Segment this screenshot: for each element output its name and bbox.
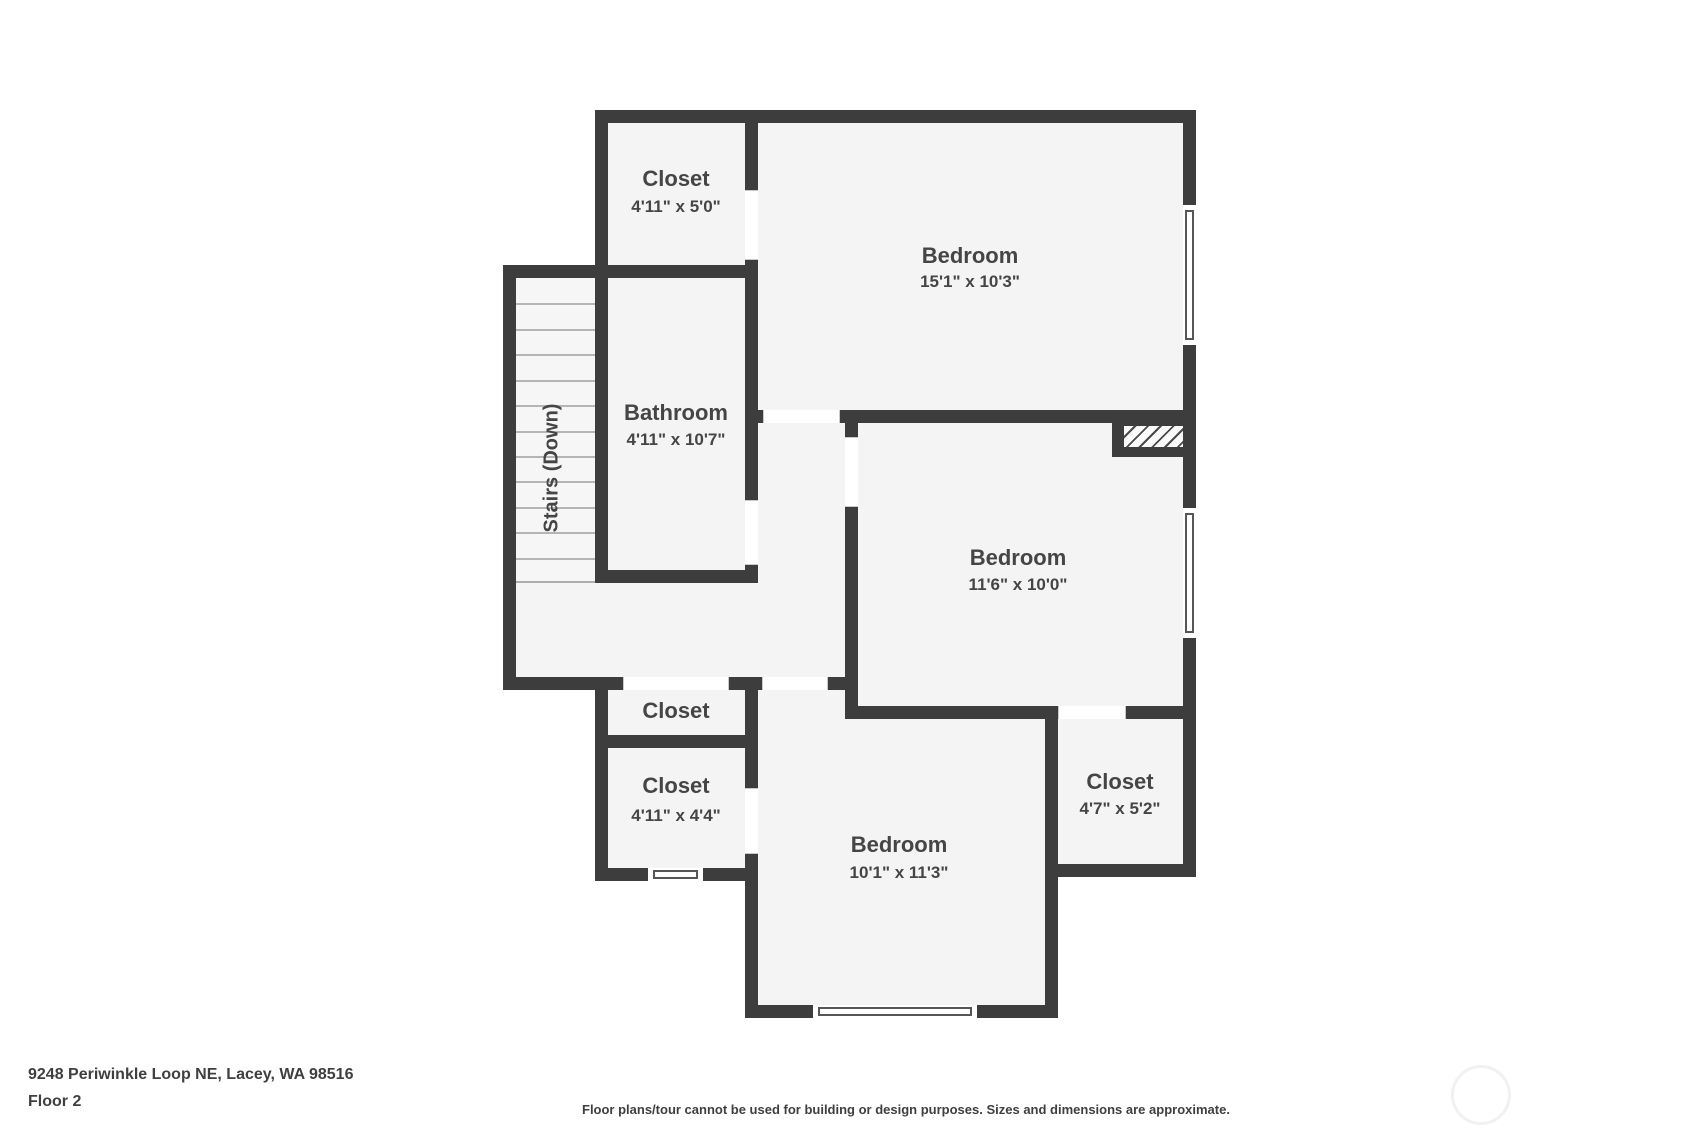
wall [595, 677, 608, 881]
window-bedroom-top [1183, 205, 1196, 345]
room-name-closet-top-left: Closet [642, 166, 709, 192]
watermark-logo-circle [1451, 1065, 1511, 1125]
stair-edge-line [516, 581, 595, 583]
room-name-bedroom-bottom: Bedroom [851, 832, 948, 858]
room-dims-closet-top-left: 4'11" x 5'0" [631, 197, 720, 217]
room-floor [758, 423, 858, 683]
wall [595, 735, 758, 748]
wall [595, 570, 758, 583]
room-dims-bedroom-top: 15'1" x 10'3" [920, 272, 1020, 292]
room-name-bathroom: Bathroom [624, 400, 728, 426]
window-pane [653, 870, 698, 879]
stair-tread [516, 354, 595, 356]
room-name-bedroom-top: Bedroom [922, 243, 1019, 269]
door-opening-closet-hallway [623, 677, 729, 690]
door-opening-closet-lower-left [745, 788, 758, 854]
door-opening-bedroom-middle [845, 437, 858, 507]
window-pane [818, 1007, 972, 1016]
door-opening-bathroom [745, 500, 758, 565]
stairs-label: Stairs (Down) [541, 404, 564, 533]
window-pane [1185, 513, 1194, 633]
window-bedroom-bottom [813, 1005, 977, 1018]
floor-number-label: Floor 2 [28, 1093, 81, 1111]
wall [845, 706, 1196, 719]
wall [503, 265, 758, 278]
room-name-closet-bottom-right: Closet [1086, 769, 1153, 795]
door-opening-closet-bottom-right [1058, 706, 1126, 719]
room-dims-closet-lower-left: 4'11" x 4'4" [631, 806, 720, 826]
wall [595, 110, 608, 570]
room-dims-closet-bottom-right: 4'7" x 5'2" [1080, 799, 1161, 819]
stair-tread [516, 558, 595, 560]
property-address: 9248 Periwinkle Loop NE, Lacey, WA 98516 [28, 1066, 353, 1084]
room-name-closet-lower-left: Closet [642, 773, 709, 799]
stair-tread [516, 380, 595, 382]
window-pane [1185, 210, 1194, 340]
door-opening-closet-top-left [745, 190, 758, 260]
room-dims-bathroom: 4'11" x 10'7" [627, 430, 726, 450]
stair-tread [516, 329, 595, 331]
disclaimer-text: Floor plans/tour cannot be used for buil… [582, 1102, 1072, 1117]
wall [1045, 706, 1058, 1018]
window-closet-lower-left [648, 868, 703, 881]
room-dims-bedroom-middle: 11'6" x 10'0" [969, 575, 1068, 595]
floor-plan: Closet4'11" x 5'0"Bedroom15'1" x 10'3"Ba… [0, 0, 1697, 1131]
wall [595, 110, 1196, 123]
wall [1045, 864, 1196, 877]
stair-tread [516, 303, 595, 305]
window-bedroom-middle [1183, 508, 1196, 638]
room-dims-bedroom-bottom: 10'1" x 11'3" [850, 863, 949, 883]
room-floor [858, 423, 1183, 719]
door-opening-bedroom-bottom [762, 677, 828, 690]
floor-plan-page: Closet4'11" x 5'0"Bedroom15'1" x 10'3"Ba… [0, 0, 1697, 1131]
hatch-block [1112, 410, 1196, 457]
door-opening-bedroom-top [763, 410, 840, 423]
hatch-pattern [1124, 426, 1183, 447]
wall [503, 265, 516, 690]
room-name-closet-hallway: Closet [642, 698, 709, 724]
room-name-bedroom-middle: Bedroom [970, 545, 1067, 571]
